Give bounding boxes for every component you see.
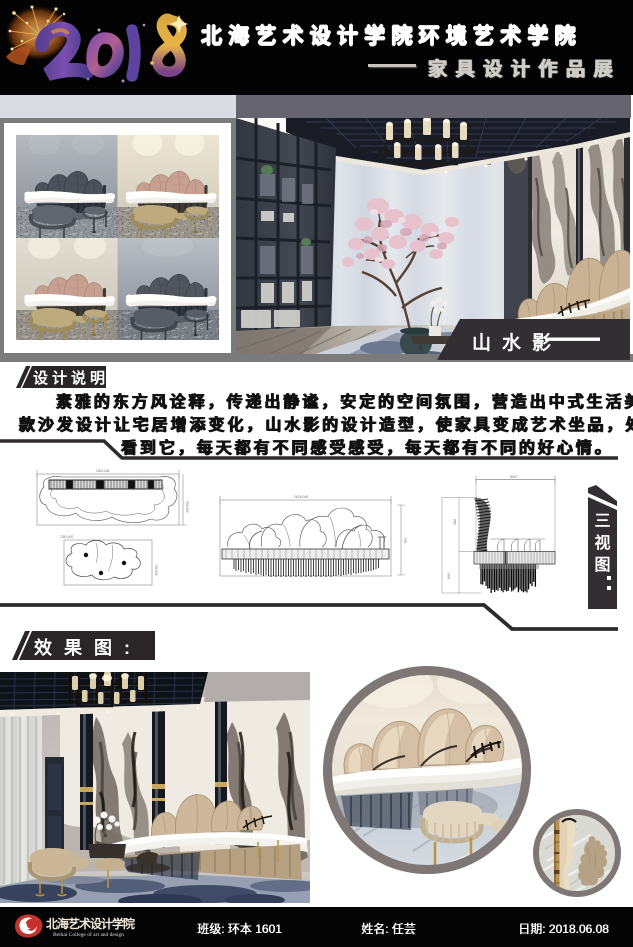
svg-text:2624.048: 2624.048 [96,469,110,473]
svg-text:550: 550 [510,474,517,479]
svg-text:效果图:: 效果图: [34,637,142,658]
svg-text:2624.048: 2624.048 [294,495,308,499]
svg-text:900: 900 [403,538,407,544]
svg-text:三: 三 [595,513,611,530]
svg-text:1354.602: 1354.602 [60,535,74,539]
svg-text:734.805: 734.805 [154,564,158,576]
svg-text:380: 380 [453,519,457,525]
svg-text:设计说明:: 设计说明: [33,369,118,387]
svg-text:600: 600 [447,573,451,579]
svg-text:视: 视 [595,533,611,552]
svg-text:904.609: 904.609 [185,501,189,513]
svg-text:图: 图 [595,556,611,574]
svg-text:山水影: 山水影 [472,332,562,354]
